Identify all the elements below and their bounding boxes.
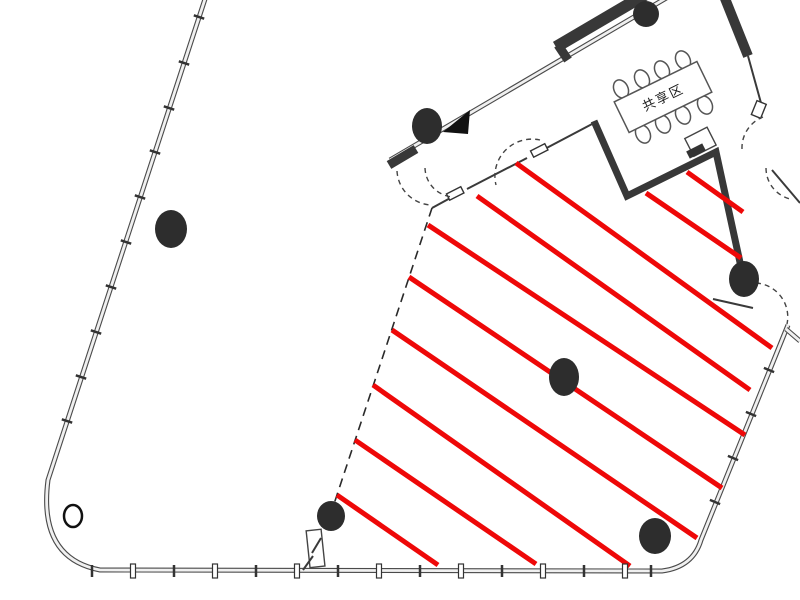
door-swing-arc <box>756 283 788 324</box>
column <box>412 108 442 144</box>
mullion-tick <box>623 564 628 578</box>
mullion-tick <box>179 61 189 64</box>
hatch-line <box>355 440 536 564</box>
mullion-tick <box>131 564 136 578</box>
hatch-boundary-dashed <box>333 208 432 507</box>
hatch-line <box>687 172 743 212</box>
mullion-tick <box>194 15 204 18</box>
column <box>633 1 659 27</box>
door-frame <box>447 187 464 201</box>
column <box>317 501 345 531</box>
door-swing-arc <box>766 168 790 199</box>
mullion-tick <box>135 195 145 198</box>
column <box>155 210 187 248</box>
entrance-arrow-icon <box>443 110 470 134</box>
mullion-tick <box>164 106 174 109</box>
column <box>549 358 579 396</box>
top-right-door <box>742 101 800 203</box>
column <box>729 261 759 297</box>
hatch-line <box>477 196 750 390</box>
door-swing-arc <box>397 171 431 205</box>
floor-plan: 共享区 <box>0 0 800 600</box>
mullion-tick <box>121 240 131 243</box>
top-right-wall-band <box>724 0 761 103</box>
mullion-tick <box>295 564 300 578</box>
column <box>639 518 671 554</box>
mullion-tick <box>459 564 464 578</box>
mullion-tick <box>91 330 101 333</box>
mullion-tick <box>106 285 116 288</box>
hatch-line <box>337 495 438 565</box>
door-jamb <box>751 101 766 119</box>
hatch-line <box>428 225 745 435</box>
riser-box <box>303 529 325 570</box>
mullion-tick <box>150 150 160 153</box>
door-frame <box>531 144 548 158</box>
mullion-tick <box>541 564 546 578</box>
door-swing-arc <box>742 117 763 149</box>
open-column <box>64 505 82 527</box>
mullion-tick <box>62 419 72 422</box>
mullion-tick <box>377 564 382 578</box>
mullion-tick <box>213 564 218 578</box>
